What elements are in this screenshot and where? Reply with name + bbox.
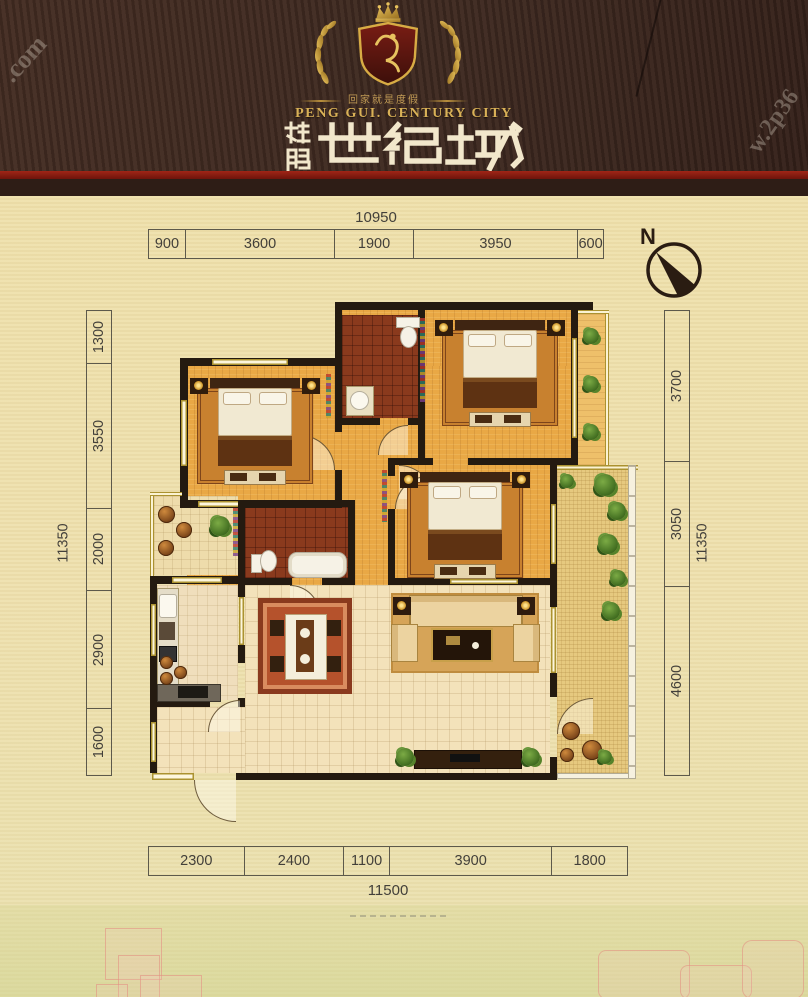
cooktop [178, 686, 208, 698]
dim-label: 1600 [91, 726, 107, 758]
window [151, 722, 156, 762]
watermark-right: w.2p36 [742, 85, 805, 159]
window [551, 504, 556, 564]
plant-pot [562, 722, 580, 740]
wall [550, 585, 557, 607]
wall [335, 310, 342, 432]
tv [450, 754, 480, 762]
armchair [513, 624, 540, 662]
toilet-bowl [260, 550, 277, 572]
door-arc-kitchen [208, 700, 240, 732]
plant-pot [160, 656, 173, 669]
label-strip [326, 374, 331, 418]
site-building [742, 940, 804, 997]
wall [388, 465, 395, 476]
dim-left-total: 11350 [55, 310, 73, 776]
faint-marks [350, 915, 446, 917]
armchair [391, 624, 418, 662]
plant-pot [560, 748, 574, 762]
plant [583, 424, 599, 440]
window [212, 359, 288, 365]
railing [605, 314, 609, 465]
plant [598, 534, 618, 554]
bed-mid-bedroom [407, 472, 523, 586]
plant-pot [158, 506, 175, 523]
flourish-line [426, 100, 468, 102]
dim-label: 4600 [669, 665, 685, 697]
floor-plan [150, 302, 642, 792]
ruler-right: 3700 3050 4600 [664, 310, 690, 776]
lamp [397, 601, 406, 610]
lamp [521, 601, 530, 610]
plant-pot [160, 672, 173, 685]
wall [322, 578, 355, 585]
sofa [409, 595, 523, 627]
kitchen-sink [159, 594, 177, 618]
window [172, 577, 222, 583]
railing [150, 492, 182, 496]
site-building [598, 950, 690, 997]
wall [238, 645, 245, 663]
dim-label: 1900 [358, 236, 390, 252]
label-strip [233, 508, 238, 556]
dim-label: 3550 [91, 420, 107, 452]
chair [270, 620, 284, 636]
header-banner: 回家就是度假 PENG GUI. CENTURY CITY [0, 0, 808, 196]
plant [522, 748, 540, 766]
wall [335, 302, 593, 310]
label-strip [420, 318, 425, 402]
header-lower-band [0, 179, 808, 196]
plant [583, 376, 599, 392]
floorplan-poster: 回家就是度假 PENG GUI. CENTURY CITY [0, 0, 808, 997]
window [572, 338, 577, 438]
dim-label: 900 [155, 236, 179, 252]
window [239, 597, 244, 645]
ruler-left: 1300 3550 2000 2900 1600 [86, 310, 112, 776]
flourish-line [300, 100, 342, 102]
dim-label: 3700 [669, 370, 685, 402]
plant [602, 602, 620, 620]
dim-label: 3950 [479, 236, 511, 252]
plate [300, 628, 310, 638]
tea-tray [446, 636, 460, 645]
brand-cn-text: 桂鹏世纪城 [274, 120, 536, 172]
dim-label: 1100 [351, 853, 382, 869]
brand-tagline: 回家就是度假 [348, 95, 420, 106]
plant [608, 502, 626, 520]
dim-label: 1800 [574, 853, 606, 869]
plate [300, 654, 310, 664]
ruler-top: 900 3600 1900 3950 600 [148, 229, 604, 259]
plant [396, 748, 414, 766]
dim-label: 1300 [91, 321, 107, 353]
railing [557, 773, 636, 779]
chair [270, 656, 284, 672]
compass: N [634, 222, 710, 306]
site-building [96, 984, 128, 997]
plant [583, 328, 599, 344]
ruler-bottom: 2300 2400 1100 3900 1800 [148, 846, 628, 876]
railing [628, 465, 636, 779]
header-red-rule [0, 171, 808, 179]
window [198, 501, 242, 507]
watermark-top-left: .com [0, 29, 53, 88]
chair [327, 656, 341, 672]
decor [472, 642, 479, 649]
plant [560, 474, 574, 488]
wall [335, 418, 380, 425]
wall [408, 418, 425, 425]
dim-top-total: 10950 [148, 209, 604, 226]
plant-pot [158, 540, 174, 556]
plant [594, 474, 616, 496]
window [152, 773, 194, 780]
wall [238, 585, 245, 597]
dim-label: 600 [578, 236, 602, 252]
wall [550, 757, 557, 773]
coffee-table [431, 628, 493, 662]
wall [238, 500, 245, 585]
bed-left-bedroom [197, 378, 313, 492]
compass-north-label: N [640, 224, 656, 249]
plant-pot [176, 522, 192, 538]
dim-label: 2300 [180, 853, 212, 869]
brand-name-cn: 桂鹏世纪城 [274, 120, 536, 172]
window [551, 607, 556, 673]
dim-label: 3600 [244, 236, 276, 252]
wall [238, 578, 292, 585]
chair [327, 620, 341, 636]
crown-icon [376, 2, 401, 22]
plant [210, 516, 230, 536]
wall [236, 773, 557, 780]
railing [150, 492, 154, 576]
shield-lion-icon [359, 23, 417, 84]
wall [348, 500, 355, 585]
label-strip [382, 470, 387, 522]
window [181, 400, 187, 466]
plant [610, 570, 626, 586]
dim-label: 3900 [455, 853, 487, 869]
dim-label: 3050 [669, 508, 685, 540]
dim-label: 2900 [91, 633, 107, 665]
wall [238, 500, 355, 507]
railing [557, 465, 638, 470]
wall [468, 458, 578, 465]
sink [350, 391, 369, 410]
dim-label: 2000 [91, 533, 107, 565]
kitchen-appliance [159, 622, 175, 640]
plant-pot [174, 666, 187, 679]
toilet-bowl [400, 326, 417, 348]
window [151, 604, 156, 656]
bathtub [288, 552, 347, 578]
dim-bottom-total: 11500 [148, 882, 628, 899]
dim-label: 2400 [278, 853, 310, 869]
site-building [140, 975, 202, 997]
wall [388, 509, 395, 585]
dim-right-total: 11350 [694, 310, 712, 776]
bed-master-bedroom [442, 320, 558, 434]
texture-crack [635, 0, 662, 97]
wall [388, 458, 433, 465]
plant [598, 750, 612, 764]
wall [550, 673, 557, 697]
brand-crest [288, 2, 488, 94]
door-arc-entry [194, 780, 236, 822]
